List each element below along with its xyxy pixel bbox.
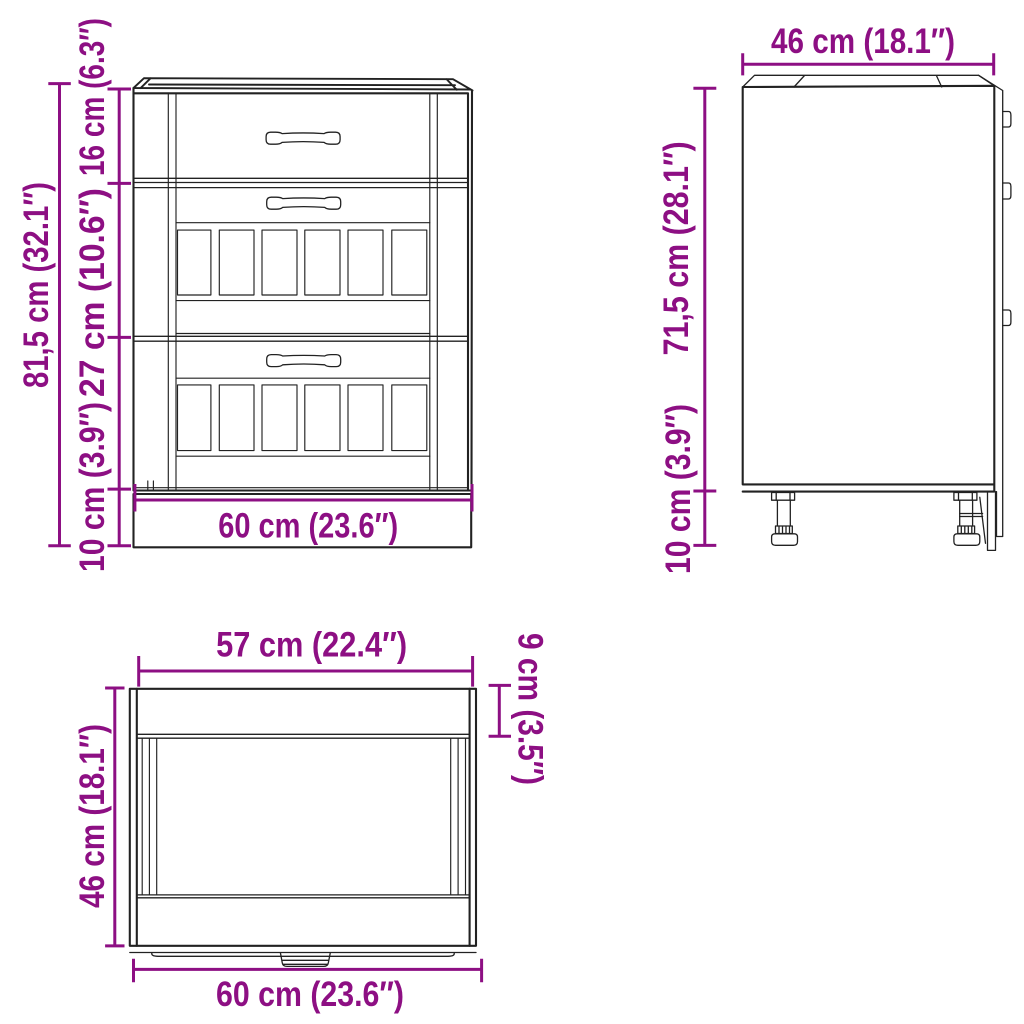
svg-text:57 cm (22.4″): 57 cm (22.4″): [216, 626, 407, 665]
svg-text:60 cm (23.6″): 60 cm (23.6″): [216, 975, 404, 1014]
svg-text:10 cm (3.9″): 10 cm (3.9″): [659, 404, 698, 574]
svg-text:81,5 cm (32.1″): 81,5 cm (32.1″): [17, 182, 56, 388]
svg-text:27 cm (10.6″): 27 cm (10.6″): [73, 188, 112, 397]
svg-text:71,5 cm (28.1″): 71,5 cm (28.1″): [657, 141, 696, 355]
svg-text:46 cm (18.1″): 46 cm (18.1″): [73, 724, 112, 908]
svg-text:10 cm (3.9″): 10 cm (3.9″): [73, 402, 112, 572]
svg-text:46 cm (18.1″): 46 cm (18.1″): [771, 22, 955, 61]
svg-text:9 cm (3.5″): 9 cm (3.5″): [511, 633, 550, 785]
svg-text:60 cm (23.6″): 60 cm (23.6″): [218, 507, 398, 546]
svg-text:16 cm (6.3″): 16 cm (6.3″): [73, 18, 112, 176]
